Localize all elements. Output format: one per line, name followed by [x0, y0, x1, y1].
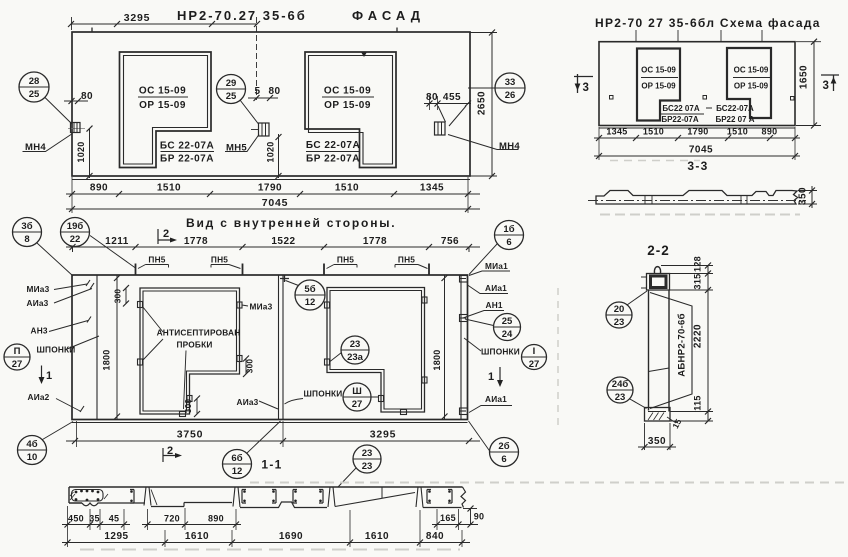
svg-text:БР22 07 А: БР22 07 А — [715, 115, 754, 124]
svg-text:П: П — [14, 346, 21, 357]
svg-text:6б: 6б — [231, 453, 242, 464]
svg-text:Ш: Ш — [352, 386, 362, 397]
svg-text:ОС 15-09: ОС 15-09 — [734, 66, 769, 75]
svg-text:890: 890 — [90, 183, 108, 194]
svg-text:7045: 7045 — [262, 197, 289, 209]
svg-text:756: 756 — [441, 236, 459, 247]
svg-text:I: I — [533, 346, 536, 357]
svg-text:22: 22 — [70, 234, 81, 245]
svg-text:АИа2: АИа2 — [28, 392, 50, 402]
svg-text:1020: 1020 — [266, 141, 276, 162]
svg-text:350: 350 — [798, 187, 809, 205]
svg-text:115: 115 — [693, 395, 703, 410]
svg-text:МН4: МН4 — [499, 141, 520, 152]
svg-text:720: 720 — [164, 514, 180, 524]
svg-text:315: 315 — [693, 274, 703, 290]
svg-text:3: 3 — [823, 80, 829, 92]
svg-text:33: 33 — [505, 77, 516, 88]
svg-text:27: 27 — [352, 399, 363, 410]
svg-text:8: 8 — [24, 234, 29, 245]
svg-text:ОР 15-09: ОР 15-09 — [641, 82, 676, 91]
svg-text:3295: 3295 — [370, 429, 397, 441]
svg-text:АН1: АН1 — [486, 300, 503, 310]
svg-text:МИа3: МИа3 — [27, 284, 50, 294]
svg-text:1610: 1610 — [185, 531, 209, 542]
svg-text:3750: 3750 — [177, 429, 204, 441]
svg-text:23: 23 — [614, 317, 625, 328]
svg-text:25: 25 — [226, 91, 237, 102]
svg-text:300: 300 — [183, 399, 193, 414]
svg-text:АН3: АН3 — [31, 326, 48, 336]
svg-text:1610: 1610 — [365, 531, 389, 542]
svg-text:БР 22-07А: БР 22-07А — [160, 154, 214, 165]
svg-text:БС 22-07А: БС 22-07А — [160, 141, 214, 152]
svg-text:1510: 1510 — [643, 127, 664, 137]
svg-text:2б: 2б — [498, 441, 509, 452]
svg-text:1: 1 — [488, 371, 494, 383]
svg-text:НР2-70.27 35-6б: НР2-70.27 35-6б — [177, 8, 307, 23]
svg-text:1790: 1790 — [258, 183, 282, 194]
svg-text:МИа3: МИа3 — [250, 302, 273, 312]
svg-text:90: 90 — [474, 512, 485, 522]
svg-text:128: 128 — [693, 256, 703, 272]
svg-text:1345: 1345 — [606, 127, 627, 137]
svg-text:2-2: 2-2 — [647, 243, 670, 258]
svg-text:455: 455 — [443, 92, 461, 103]
svg-text:26: 26 — [505, 90, 516, 101]
svg-text:23: 23 — [362, 461, 373, 472]
svg-text:27: 27 — [12, 359, 23, 370]
svg-text:840: 840 — [426, 531, 444, 542]
svg-text:24б: 24б — [612, 379, 629, 390]
svg-text:1295: 1295 — [104, 531, 128, 542]
svg-text:1-1: 1-1 — [261, 458, 282, 472]
svg-text:БС 22-07А: БС 22-07А — [306, 140, 360, 151]
svg-text:24: 24 — [502, 329, 513, 340]
svg-text:2220: 2220 — [693, 324, 704, 348]
svg-text:МИа1: МИа1 — [485, 261, 508, 271]
svg-text:ОР 15-09: ОР 15-09 — [734, 82, 769, 91]
svg-text:450: 450 — [68, 514, 84, 524]
svg-text:3: 3 — [583, 82, 589, 94]
svg-text:МН5: МН5 — [226, 143, 247, 154]
svg-text:2: 2 — [167, 445, 173, 457]
svg-text:ПН5: ПН5 — [211, 255, 228, 265]
svg-text:12: 12 — [232, 466, 243, 477]
svg-text:23: 23 — [362, 448, 373, 459]
svg-text:АИа3: АИа3 — [27, 298, 49, 308]
svg-text:23: 23 — [615, 392, 626, 403]
svg-text:1211: 1211 — [105, 236, 129, 247]
svg-text:ПН5: ПН5 — [148, 255, 165, 265]
svg-text:7045: 7045 — [689, 145, 713, 156]
svg-text:АНТИСЕПТИРОВАН: АНТИСЕПТИРОВАН — [157, 328, 241, 338]
svg-text:80: 80 — [268, 86, 280, 97]
svg-text:28: 28 — [29, 76, 40, 87]
svg-text:1510: 1510 — [727, 127, 748, 137]
svg-text:1800: 1800 — [102, 349, 112, 370]
svg-text:ШПОНКИ: ШПОНКИ — [37, 345, 76, 355]
svg-text:1510: 1510 — [335, 183, 359, 194]
svg-text:45: 45 — [109, 514, 120, 524]
svg-text:890: 890 — [762, 127, 778, 137]
svg-text:1522: 1522 — [271, 236, 295, 247]
svg-text:165: 165 — [440, 513, 456, 523]
svg-text:ОС 15-09: ОС 15-09 — [324, 86, 371, 97]
svg-text:1б: 1б — [503, 224, 514, 235]
svg-text:1510: 1510 — [157, 183, 181, 194]
svg-text:25: 25 — [29, 89, 40, 100]
svg-text:12: 12 — [305, 297, 316, 308]
svg-text:2: 2 — [163, 228, 169, 240]
svg-text:300: 300 — [245, 359, 255, 374]
svg-text:35: 35 — [89, 514, 100, 524]
svg-text:23: 23 — [350, 339, 361, 350]
svg-text:БС22-07А: БС22-07А — [716, 104, 754, 113]
svg-text:1650: 1650 — [799, 65, 810, 89]
svg-text:1778: 1778 — [363, 236, 387, 247]
svg-text:АИа1: АИа1 — [485, 394, 507, 404]
svg-text:1790: 1790 — [687, 127, 708, 137]
svg-text:350: 350 — [648, 436, 666, 447]
svg-text:19б: 19б — [67, 221, 84, 232]
svg-text:80: 80 — [81, 91, 93, 102]
svg-text:Вид с внутренней стороны.: Вид с внутренней стороны. — [186, 216, 396, 230]
svg-text:НР2-70 27 35-6бл Схема фасада: НР2-70 27 35-6бл Схема фасада — [595, 16, 821, 30]
svg-text:ОР 15-09: ОР 15-09 — [324, 100, 371, 111]
svg-text:АБНР2-70-6б: АБНР2-70-6б — [677, 313, 688, 377]
svg-text:ШПОНКИ: ШПОНКИ — [304, 389, 343, 399]
svg-text:29: 29 — [226, 78, 237, 89]
svg-text:300: 300 — [113, 289, 123, 304]
svg-text:ШПОНКИ: ШПОНКИ — [481, 347, 520, 357]
svg-text:890: 890 — [208, 514, 224, 524]
svg-text:1: 1 — [46, 370, 52, 382]
svg-text:27: 27 — [529, 359, 540, 370]
svg-text:20: 20 — [614, 304, 625, 315]
svg-text:МН4: МН4 — [25, 142, 46, 153]
svg-text:80: 80 — [426, 92, 438, 103]
svg-text:1778: 1778 — [184, 236, 208, 247]
svg-text:АИа1: АИа1 — [485, 283, 507, 293]
svg-text:1690: 1690 — [279, 531, 303, 542]
svg-text:1345: 1345 — [420, 183, 444, 194]
svg-text:6: 6 — [506, 237, 511, 248]
svg-text:ОС 15-09: ОС 15-09 — [641, 66, 676, 75]
svg-text:23а: 23а — [347, 352, 364, 363]
svg-text:4б: 4б — [26, 439, 37, 450]
svg-text:10: 10 — [27, 452, 38, 463]
svg-text:5б: 5б — [304, 284, 315, 295]
svg-text:2650: 2650 — [477, 91, 488, 115]
svg-text:ОС 15-09: ОС 15-09 — [139, 86, 186, 97]
svg-text:3295: 3295 — [124, 12, 151, 24]
svg-text:ФАСАД: ФАСАД — [352, 8, 425, 23]
svg-text:ПН5: ПН5 — [398, 255, 415, 265]
svg-text:25: 25 — [502, 316, 513, 327]
svg-text:1020: 1020 — [76, 141, 86, 162]
svg-text:6: 6 — [501, 454, 506, 465]
svg-text:ПРОБКИ: ПРОБКИ — [176, 340, 212, 350]
svg-text:БР 22-07А: БР 22-07А — [306, 154, 360, 165]
svg-text:ОР 15-09: ОР 15-09 — [139, 100, 186, 111]
svg-text:5: 5 — [254, 86, 260, 97]
svg-text:3б: 3б — [21, 221, 32, 232]
svg-text:ПН5: ПН5 — [337, 255, 354, 265]
svg-text:БР22-07А: БР22-07А — [661, 115, 699, 124]
svg-text:АИа3: АИа3 — [237, 397, 259, 407]
svg-text:БС22 07А: БС22 07А — [662, 104, 699, 113]
svg-text:1800: 1800 — [432, 349, 442, 370]
